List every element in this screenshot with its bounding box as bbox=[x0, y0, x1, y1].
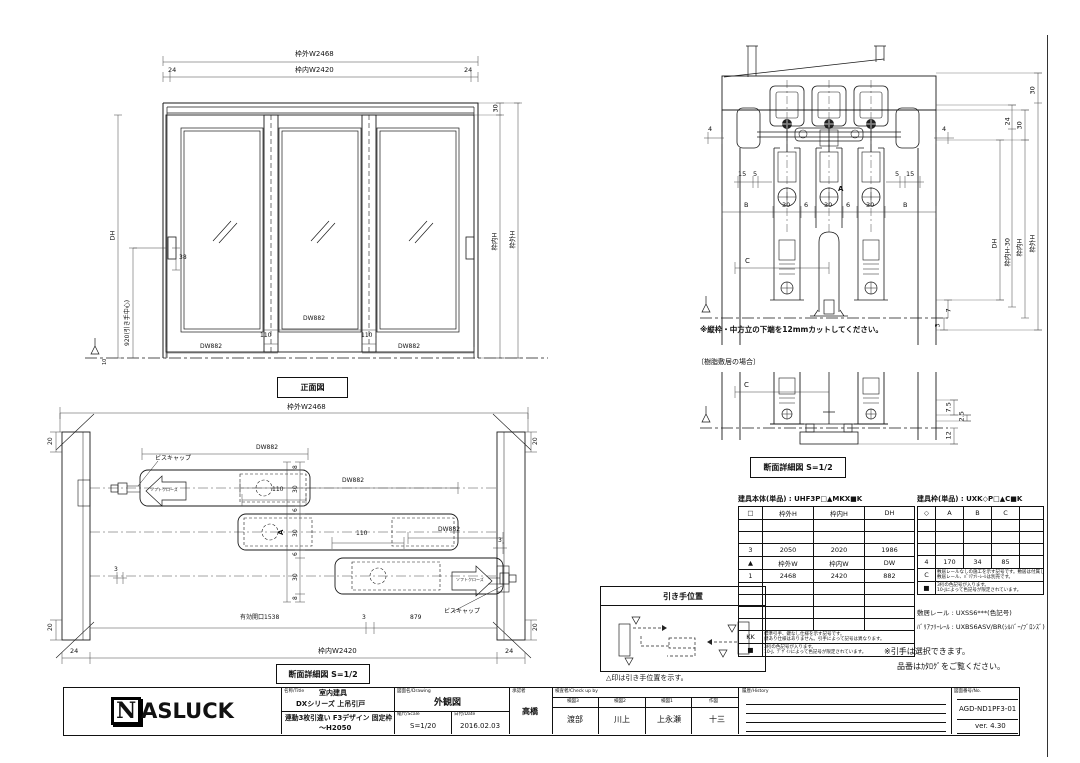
table-note: 鍵あり仕様はありません。引手によって記号は異なります。 bbox=[764, 637, 885, 642]
cell: 4 bbox=[918, 556, 936, 569]
dim-label: 30 bbox=[824, 202, 832, 209]
dim-label: 6 bbox=[293, 552, 299, 556]
table-note: 10-Jによって色記号が限定されています。 bbox=[937, 588, 1021, 593]
dim-label: 30 bbox=[293, 573, 299, 581]
cell: ▲ bbox=[739, 557, 763, 570]
cell: ■ bbox=[918, 582, 936, 595]
checker-name: 十三 bbox=[709, 716, 725, 724]
dim-label: B bbox=[744, 202, 748, 209]
table-note: 10-J、ﾃﾞｻﾞｲﾝによって色記号が限定されています。 bbox=[764, 650, 866, 655]
title-block: NASLUCK 名称/Title 室内建具 DXシリーズ 上吊引戸 連動3枚引違… bbox=[63, 687, 1020, 736]
dim-label: 30 bbox=[293, 485, 299, 493]
cell: DW bbox=[865, 557, 915, 570]
table-note: 標準引手、鍵なし仕様を示す記号です。 bbox=[764, 632, 845, 637]
dim-label: 20 bbox=[533, 623, 539, 631]
dim-label: 110 bbox=[260, 333, 271, 339]
handle-position-note: △印は引き手位置を示す。 bbox=[606, 675, 688, 682]
dim-label: B bbox=[903, 202, 907, 209]
col-header: 枠外H bbox=[763, 507, 814, 520]
col-header: C bbox=[992, 507, 1020, 520]
cell: 85 bbox=[992, 556, 1020, 569]
resin-sill-section-drawing bbox=[690, 355, 1060, 475]
dim-label: A bbox=[838, 186, 843, 193]
col-header: ◇ bbox=[918, 507, 936, 520]
drawing-type: 外観図 bbox=[434, 699, 461, 708]
check-col-header: 作図 bbox=[709, 700, 718, 705]
cell: 2020 bbox=[814, 544, 865, 557]
dim-label: 枠内H bbox=[1017, 239, 1024, 257]
frame-table: ◇ A B C 4 170 34 85 C 敷居レールなしの施工を示す記号です。… bbox=[917, 506, 1044, 595]
screw-cap-label: ビスキャップ bbox=[444, 609, 480, 615]
plan-detail-caption: 断面詳細図 S=1/2 bbox=[276, 664, 370, 684]
check-col-header: 検図3 bbox=[567, 700, 579, 705]
dim-label: 24 bbox=[464, 67, 472, 74]
logo-text: ASLUCK bbox=[141, 699, 234, 723]
dim-label: DW882 bbox=[200, 344, 222, 350]
section-detail-drawing bbox=[690, 30, 1060, 360]
drawing-no-header: 図面番号/No. bbox=[954, 690, 981, 695]
nasluck-logo: NASLUCK bbox=[64, 688, 281, 734]
dim-label: 24 bbox=[505, 648, 513, 655]
body-table-title: 建具本体(単品) : UHF3P□▲MKX■K bbox=[738, 496, 862, 503]
catalog-note: 品番はｶﾀﾛｸﾞをご覧ください。 bbox=[897, 663, 1005, 671]
approver-header: 承認者 bbox=[512, 690, 526, 695]
dim-label: 8 bbox=[293, 465, 299, 469]
cell: C bbox=[918, 569, 936, 582]
product-name-3: 連動3枚引違い F3デザイン 固定枠 bbox=[285, 715, 392, 722]
dim-label: 24 bbox=[1005, 117, 1012, 125]
soft-close-label: ソフトクローズ bbox=[456, 578, 484, 582]
col-header: □ bbox=[739, 507, 763, 520]
soft-close-label: ソフトクローズ bbox=[150, 488, 178, 492]
dim-label: A bbox=[278, 530, 285, 535]
drawing-sheet: { "front": { "caption": "正面図", "dim_w_ou… bbox=[0, 0, 1080, 763]
dim-label: 110 bbox=[272, 487, 283, 493]
dim-label: 5 bbox=[895, 171, 899, 178]
dim-label: 20 bbox=[48, 623, 54, 631]
table-note: 敷居レールなしの施工を示す記号です。敷居は付属しません。 bbox=[937, 570, 1044, 575]
product-name-4: ～H2050 bbox=[319, 725, 351, 732]
dim-label: 4 bbox=[708, 126, 712, 133]
dim-label: DH bbox=[992, 239, 999, 249]
dim-label: C bbox=[744, 382, 749, 389]
col-header: DH bbox=[865, 507, 915, 520]
dim-label: 30 bbox=[1017, 121, 1024, 129]
dim-label: 15 bbox=[906, 171, 914, 178]
dim-label: 6 bbox=[804, 202, 808, 209]
sheet-border bbox=[1047, 35, 1048, 757]
dim-label: 4 bbox=[942, 126, 946, 133]
dim-label: 30 bbox=[1030, 86, 1037, 94]
check-header: 検査者/Check up by bbox=[555, 690, 598, 695]
date-header: 日付/Date bbox=[454, 713, 475, 718]
dim-label: 20 bbox=[533, 437, 539, 445]
dim-label: 12 bbox=[946, 431, 953, 439]
cell: 3 bbox=[739, 544, 763, 557]
dim-label: 30 bbox=[782, 202, 790, 209]
approver-name: 高橋 bbox=[522, 708, 538, 716]
barrier-free-rail-note: ﾊﾞﾘｱﾌﾘｰﾚｰﾙ : UXBS6ASV/BR(ｼﾙﾊﾞｰ/ﾌﾞﾛﾝｽﾞ) bbox=[917, 624, 1045, 631]
col-header: A bbox=[936, 507, 964, 520]
dim-label: 6 bbox=[293, 508, 299, 512]
scale-value: S=1/20 bbox=[410, 723, 436, 730]
drawing-header: 図面名/Drawing bbox=[397, 690, 431, 695]
dim-label: 30 bbox=[293, 529, 299, 537]
dim-label: 30 bbox=[493, 104, 500, 112]
cell: 34 bbox=[964, 556, 992, 569]
dim-label: 3 bbox=[114, 567, 118, 573]
dim-label: 24 bbox=[168, 67, 176, 74]
cell: 1 bbox=[739, 570, 763, 583]
dim-label: 3 bbox=[362, 615, 366, 621]
handle-select-note: ※引手は選択できます。 bbox=[884, 648, 970, 656]
dim-label: 枠内W2420 bbox=[295, 67, 334, 74]
col-header bbox=[1020, 507, 1044, 520]
cell: KK bbox=[739, 631, 763, 644]
table-note: 3桁の色記号が入ります。 bbox=[937, 583, 989, 588]
check-col-header: 検図1 bbox=[661, 700, 673, 705]
dim-label: 枠外H bbox=[510, 231, 517, 249]
frame-table-title: 建具枠(単品) : UXK◇P□▲C■K bbox=[917, 496, 1022, 503]
scale-header: 縮尺/Scale bbox=[397, 713, 420, 718]
dim-label: DW882 bbox=[303, 316, 325, 322]
dim-label: DW882 bbox=[342, 478, 364, 484]
date-value: 2016.02.03 bbox=[460, 723, 500, 730]
cell bbox=[1020, 556, 1044, 569]
checker-name: 渡部 bbox=[567, 716, 583, 724]
drawing-version: ver. 4.30 bbox=[975, 723, 1006, 730]
cell: 2420 bbox=[814, 570, 865, 583]
dim-label: 3 bbox=[935, 323, 942, 327]
dim-label: 24 bbox=[70, 648, 78, 655]
product-name-1: 室内建具 bbox=[319, 690, 347, 697]
dim-label: DH bbox=[110, 231, 117, 241]
dim-label: C bbox=[745, 258, 750, 265]
drawing-number: AGD-ND1PF3-01 bbox=[959, 706, 1016, 713]
dim-label: DW882 bbox=[256, 445, 278, 451]
check-col-header: 検図2 bbox=[614, 700, 626, 705]
dim-label: 有効開口1538 bbox=[240, 615, 279, 621]
dim-label: 920(引き手中心) bbox=[125, 300, 131, 346]
dim-label: 110 bbox=[361, 333, 372, 339]
dim-label: 5 bbox=[753, 171, 757, 178]
body-table: □ 枠外H 枠内H DH 3 2050 2020 1986 ▲ 枠外W 枠内W … bbox=[738, 506, 915, 657]
dim-label: 38 bbox=[179, 255, 187, 261]
dim-label: 7.5 bbox=[946, 402, 953, 412]
cell: 1986 bbox=[865, 544, 915, 557]
dim-label: 20 bbox=[48, 437, 54, 445]
table-note: 敷居レール、ﾊﾞﾘｱﾌﾘｰﾚｰﾙは別売です。 bbox=[937, 575, 1013, 580]
dim-label: DW882 bbox=[438, 527, 460, 533]
dim-label: 枠内H bbox=[492, 233, 499, 251]
cell: 882 bbox=[865, 570, 915, 583]
dim-label: 10 bbox=[103, 359, 108, 365]
dim-label: 15 bbox=[738, 171, 746, 178]
dim-label: 8 bbox=[293, 596, 299, 600]
front-elevation-drawing bbox=[55, 40, 555, 400]
dim-label: 6 bbox=[846, 202, 850, 209]
cell: 2050 bbox=[763, 544, 814, 557]
product-name-2: DXシリーズ 上吊引戸 bbox=[296, 701, 365, 708]
dim-label: 枠内H-30 bbox=[1005, 238, 1012, 267]
section-note: ※縦枠・中方立の下端を12mmカットしてください。 bbox=[700, 326, 883, 334]
cell: 枠内W bbox=[814, 557, 865, 570]
dim-label: 879 bbox=[410, 615, 421, 621]
table-note: 3桁の色記号が入ります。 bbox=[764, 645, 816, 650]
dim-label: 枠外W2468 bbox=[295, 51, 334, 58]
cell: 170 bbox=[936, 556, 964, 569]
dim-label: 7 bbox=[946, 308, 953, 312]
cell: 2468 bbox=[763, 570, 814, 583]
screw-cap-label: ビスキャップ bbox=[155, 456, 191, 462]
name-header: 名称/Title bbox=[284, 690, 304, 695]
dim-label: 枠外W2468 bbox=[287, 404, 326, 411]
resin-sill-label: 〔樹脂敷居の場合〕 bbox=[697, 359, 760, 366]
rail-note: 敷居レール : UXSS6***(色記号) bbox=[917, 610, 1012, 617]
dim-label: 3 bbox=[498, 538, 502, 544]
dim-label: 枠外H bbox=[1030, 235, 1037, 253]
col-header: B bbox=[964, 507, 992, 520]
logo-letter-n: N bbox=[111, 697, 141, 725]
checker-name: 上永瀬 bbox=[657, 716, 681, 724]
checker-name: 川上 bbox=[614, 716, 630, 724]
dim-label: 枠内W2420 bbox=[318, 648, 357, 655]
dim-label: 30 bbox=[866, 202, 874, 209]
dim-label: DW882 bbox=[398, 344, 420, 350]
cell: 枠外W bbox=[763, 557, 814, 570]
col-header: 枠内H bbox=[814, 507, 865, 520]
dim-label: 2.5 bbox=[959, 411, 966, 421]
section-detail-caption: 断面詳細図 S=1/2 bbox=[750, 457, 846, 478]
dim-label: 110 bbox=[356, 531, 367, 537]
history-header: 履歴/History bbox=[742, 690, 769, 695]
cell: ■ bbox=[739, 644, 763, 657]
